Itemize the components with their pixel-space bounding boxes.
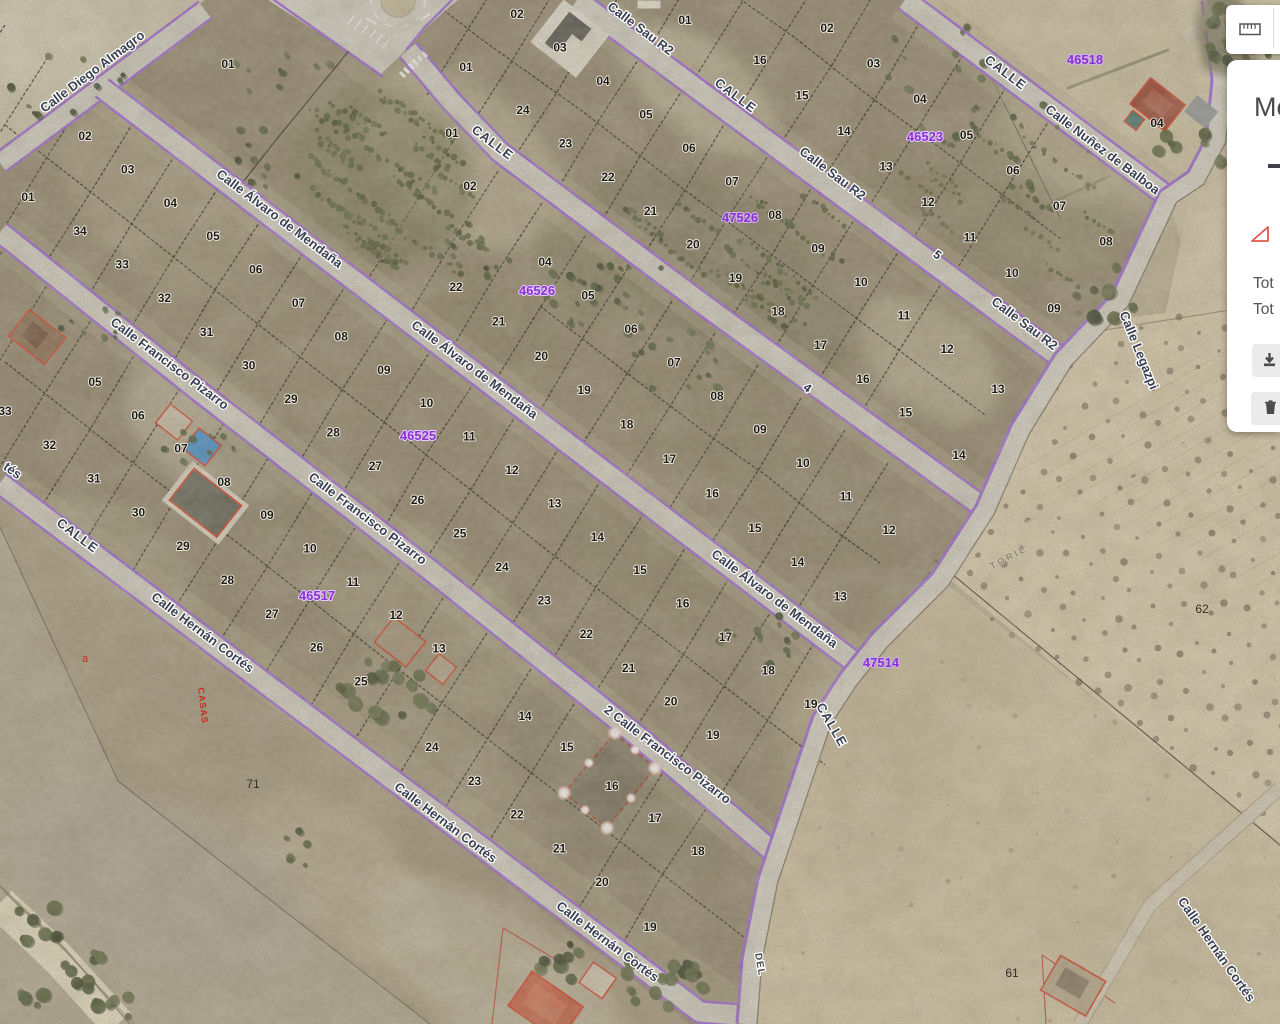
svg-text:02: 02 [820,21,834,35]
svg-text:12: 12 [505,463,519,477]
svg-text:10: 10 [303,542,317,556]
svg-text:02: 02 [463,179,477,193]
svg-text:09: 09 [260,508,274,522]
svg-text:05: 05 [88,375,102,389]
svg-text:15: 15 [899,405,913,419]
svg-text:17: 17 [648,811,662,825]
svg-text:04: 04 [538,255,552,269]
svg-text:18: 18 [691,844,705,858]
svg-text:21: 21 [644,204,658,218]
svg-text:21: 21 [553,841,567,855]
svg-text:14: 14 [837,124,851,138]
svg-text:46526: 46526 [519,283,555,298]
svg-text:01: 01 [445,126,459,140]
svg-text:46518: 46518 [1067,52,1103,67]
svg-text:15: 15 [560,740,574,754]
svg-text:32: 32 [158,291,172,305]
svg-text:62: 62 [1195,602,1209,616]
svg-text:07: 07 [667,356,681,370]
svg-text:11: 11 [463,430,476,444]
svg-text:71: 71 [246,777,260,791]
svg-text:12: 12 [882,523,896,537]
svg-text:13: 13 [548,496,562,510]
svg-text:03: 03 [867,57,881,71]
svg-text:13: 13 [879,160,893,174]
svg-text:06: 06 [249,263,263,277]
svg-text:15: 15 [748,521,762,535]
svg-text:14: 14 [791,555,805,569]
svg-text:03: 03 [121,162,135,176]
svg-text:10: 10 [1005,266,1019,280]
svg-text:13: 13 [991,382,1005,396]
svg-text:46525: 46525 [400,428,436,443]
svg-text:19: 19 [729,271,743,285]
svg-text:09: 09 [377,363,391,377]
svg-text:47526: 47526 [722,210,758,225]
svg-text:08: 08 [1099,235,1113,249]
svg-text:33: 33 [0,404,12,418]
svg-text:04: 04 [1150,116,1164,130]
svg-text:12: 12 [389,608,403,622]
svg-text:23: 23 [538,594,552,608]
svg-text:16: 16 [676,597,690,611]
svg-text:61: 61 [1005,966,1019,980]
svg-text:21: 21 [622,661,636,675]
svg-text:15: 15 [633,563,647,577]
svg-text:08: 08 [768,208,782,222]
svg-text:04: 04 [596,74,610,88]
svg-text:05: 05 [206,229,220,243]
svg-text:09: 09 [753,423,767,437]
svg-text:02: 02 [510,7,524,21]
svg-text:07: 07 [1053,199,1067,213]
svg-text:17: 17 [663,452,677,466]
svg-text:05: 05 [581,289,595,303]
svg-text:27: 27 [369,459,383,473]
svg-text:19: 19 [643,920,657,934]
svg-text:02: 02 [78,129,92,143]
svg-text:20: 20 [595,875,609,889]
svg-text:46517: 46517 [299,588,335,603]
svg-text:31: 31 [200,325,214,339]
svg-text:28: 28 [221,573,235,587]
svg-text:15: 15 [795,89,809,103]
svg-text:11: 11 [898,309,911,323]
svg-text:26: 26 [411,493,425,507]
svg-text:07: 07 [292,296,306,310]
svg-text:32: 32 [43,438,57,452]
svg-text:27: 27 [265,607,279,621]
svg-text:10: 10 [420,396,434,410]
svg-text:09: 09 [811,242,825,256]
svg-text:05: 05 [960,128,974,142]
svg-text:20: 20 [686,237,700,251]
svg-text:19: 19 [577,383,591,397]
svg-text:14: 14 [518,709,532,723]
svg-text:23: 23 [468,774,482,788]
svg-text:22: 22 [580,627,594,641]
svg-text:25: 25 [354,674,368,688]
svg-text:25: 25 [453,526,467,540]
svg-text:23: 23 [559,137,573,151]
svg-text:47514: 47514 [863,655,900,670]
svg-text:18: 18 [771,305,785,319]
svg-text:22: 22 [510,808,524,822]
svg-text:19: 19 [706,728,720,742]
svg-text:01: 01 [459,60,473,74]
svg-text:08: 08 [710,389,724,403]
svg-text:30: 30 [242,358,256,372]
svg-text:10: 10 [796,456,810,470]
svg-text:18: 18 [762,663,776,677]
svg-text:01: 01 [221,57,235,71]
svg-text:24: 24 [516,103,530,117]
svg-text:07: 07 [725,175,739,189]
svg-text:05: 05 [639,108,653,122]
svg-text:08: 08 [217,475,231,489]
svg-text:18: 18 [620,418,634,432]
svg-text:a: a [82,653,89,665]
svg-text:33: 33 [116,258,130,272]
svg-text:20: 20 [664,694,678,708]
svg-text:22: 22 [449,280,463,294]
svg-text:22: 22 [601,170,615,184]
svg-text:10: 10 [854,275,868,289]
svg-text:04: 04 [913,92,927,106]
svg-text:13: 13 [432,641,446,655]
svg-text:12: 12 [921,195,935,209]
svg-text:20: 20 [535,349,549,363]
svg-text:31: 31 [87,472,101,486]
svg-text:26: 26 [310,641,324,655]
svg-text:13: 13 [834,590,848,604]
svg-text:06: 06 [131,408,145,422]
svg-text:24: 24 [425,740,439,754]
svg-text:16: 16 [706,486,720,500]
svg-text:21: 21 [492,314,506,328]
svg-text:12: 12 [940,342,954,356]
svg-text:16: 16 [605,779,619,793]
svg-text:04: 04 [164,196,178,210]
svg-text:24: 24 [495,560,509,574]
svg-text:06: 06 [624,322,638,336]
svg-text:01: 01 [21,190,35,204]
svg-text:28: 28 [327,426,341,440]
svg-text:30: 30 [132,505,146,519]
svg-text:14: 14 [952,448,966,462]
svg-text:17: 17 [719,630,733,644]
svg-text:03: 03 [553,41,567,55]
svg-text:01: 01 [678,13,692,27]
svg-text:17: 17 [814,338,828,352]
svg-text:06: 06 [682,141,696,155]
svg-text:19: 19 [804,697,818,711]
svg-text:09: 09 [1047,302,1061,316]
svg-text:29: 29 [176,539,190,553]
svg-text:16: 16 [753,53,767,67]
svg-text:06: 06 [1006,163,1020,177]
svg-text:11: 11 [347,575,360,589]
svg-text:07: 07 [174,442,188,456]
svg-text:11: 11 [840,490,853,504]
svg-text:14: 14 [591,530,605,544]
svg-text:46523: 46523 [907,129,943,144]
svg-text:34: 34 [73,224,87,238]
svg-text:16: 16 [856,372,870,386]
svg-text:08: 08 [335,329,349,343]
svg-text:29: 29 [284,392,298,406]
svg-text:11: 11 [964,231,977,245]
